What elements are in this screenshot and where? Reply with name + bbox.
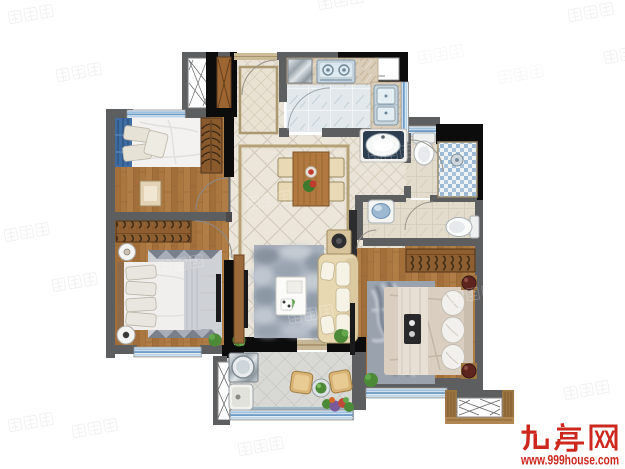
svg-text:www.999house.com: www.999house.com bbox=[520, 452, 619, 468]
